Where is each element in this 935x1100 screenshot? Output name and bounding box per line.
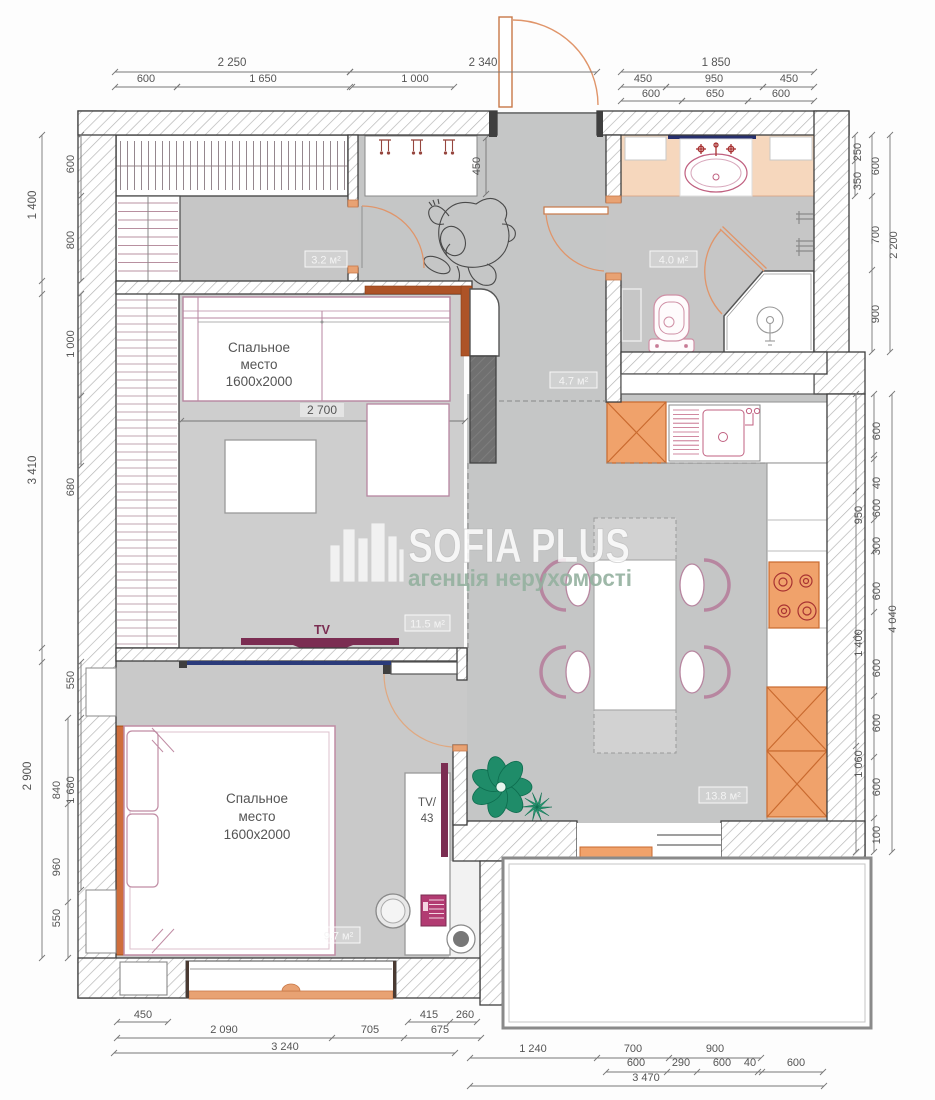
svg-text:550: 550 bbox=[51, 909, 63, 927]
svg-text:1 240: 1 240 bbox=[519, 1043, 547, 1055]
svg-text:TV: TV bbox=[314, 623, 331, 637]
svg-text:800: 800 bbox=[65, 231, 77, 249]
svg-text:1 680: 1 680 bbox=[65, 776, 77, 804]
svg-text:600: 600 bbox=[871, 582, 883, 600]
svg-text:1 060: 1 060 bbox=[853, 750, 865, 778]
svg-text:450: 450 bbox=[471, 157, 483, 175]
svg-text:600: 600 bbox=[772, 88, 790, 100]
svg-text:11.5 м²: 11.5 м² bbox=[410, 619, 445, 631]
svg-text:900: 900 bbox=[870, 305, 882, 323]
svg-text:1 850: 1 850 bbox=[702, 57, 731, 69]
svg-text:600: 600 bbox=[871, 422, 883, 440]
svg-text:3 240: 3 240 bbox=[271, 1041, 299, 1053]
svg-text:680: 680 bbox=[65, 478, 77, 496]
svg-text:350: 350 bbox=[852, 172, 864, 190]
svg-text:2 090: 2 090 bbox=[210, 1024, 238, 1036]
svg-text:250: 250 bbox=[852, 143, 864, 161]
svg-text:2 700: 2 700 bbox=[307, 403, 337, 417]
svg-text:600: 600 bbox=[871, 659, 883, 677]
svg-text:TV/: TV/ bbox=[418, 797, 437, 809]
svg-text:415: 415 bbox=[420, 1009, 438, 1021]
svg-text:600: 600 bbox=[787, 1057, 805, 1069]
svg-text:1 650: 1 650 bbox=[249, 73, 277, 85]
svg-text:600: 600 bbox=[871, 499, 883, 517]
svg-text:840: 840 bbox=[51, 781, 63, 799]
svg-text:43: 43 bbox=[421, 813, 434, 825]
svg-text:600: 600 bbox=[713, 1057, 731, 1069]
svg-text:650: 650 bbox=[706, 88, 724, 100]
svg-text:600: 600 bbox=[870, 157, 882, 175]
svg-text:600: 600 bbox=[871, 714, 883, 732]
svg-text:675: 675 bbox=[431, 1024, 449, 1036]
svg-text:4.7 м²: 4.7 м² bbox=[559, 376, 589, 388]
svg-text:3 470: 3 470 bbox=[632, 1072, 660, 1084]
svg-text:40: 40 bbox=[871, 477, 883, 489]
svg-text:3.2 м²: 3.2 м² bbox=[311, 255, 341, 267]
svg-text:агенція нерухомості: агенція нерухомості bbox=[408, 565, 632, 591]
svg-text:1600х2000: 1600х2000 bbox=[224, 827, 291, 842]
svg-text:700: 700 bbox=[870, 226, 882, 244]
svg-text:3 410: 3 410 bbox=[27, 456, 39, 485]
svg-text:место: место bbox=[238, 809, 275, 824]
svg-text:100: 100 bbox=[871, 826, 883, 844]
svg-text:600: 600 bbox=[65, 155, 77, 173]
svg-text:2 200: 2 200 bbox=[888, 231, 900, 259]
svg-text:1 000: 1 000 bbox=[65, 330, 77, 358]
svg-text:950: 950 bbox=[705, 73, 723, 85]
svg-text:4.0 м²: 4.0 м² bbox=[659, 255, 689, 267]
svg-text:4 040: 4 040 bbox=[887, 605, 899, 633]
svg-text:2 250: 2 250 bbox=[218, 57, 247, 69]
svg-text:290: 290 bbox=[672, 1057, 690, 1069]
svg-text:1 400: 1 400 bbox=[853, 629, 865, 657]
svg-text:1600х2000: 1600х2000 bbox=[226, 374, 293, 389]
svg-text:2 340: 2 340 bbox=[469, 57, 498, 69]
svg-text:600: 600 bbox=[871, 778, 883, 796]
svg-text:300: 300 bbox=[871, 537, 883, 555]
svg-text:260: 260 bbox=[456, 1009, 474, 1021]
svg-text:Спальное: Спальное bbox=[226, 791, 288, 806]
svg-text:600: 600 bbox=[137, 73, 155, 85]
svg-text:600: 600 bbox=[627, 1057, 645, 1069]
svg-text:950: 950 bbox=[853, 506, 865, 524]
svg-text:450: 450 bbox=[780, 73, 798, 85]
svg-text:2 900: 2 900 bbox=[22, 762, 34, 791]
svg-text:1 000: 1 000 bbox=[401, 73, 429, 85]
svg-text:450: 450 bbox=[634, 73, 652, 85]
svg-text:550: 550 bbox=[65, 671, 77, 689]
svg-text:705: 705 bbox=[361, 1024, 379, 1036]
svg-text:450: 450 bbox=[134, 1009, 152, 1021]
svg-text:900: 900 bbox=[706, 1043, 724, 1055]
svg-text:1 400: 1 400 bbox=[27, 191, 39, 220]
svg-text:Спальное: Спальное bbox=[228, 340, 290, 355]
svg-text:13.8 м²: 13.8 м² bbox=[705, 791, 741, 803]
svg-text:700: 700 bbox=[624, 1043, 642, 1055]
svg-text:9.7 м²: 9.7 м² bbox=[324, 931, 354, 943]
svg-text:место: место bbox=[240, 357, 277, 372]
svg-text:40: 40 bbox=[744, 1057, 756, 1069]
svg-text:960: 960 bbox=[51, 858, 63, 876]
svg-text:600: 600 bbox=[642, 88, 660, 100]
